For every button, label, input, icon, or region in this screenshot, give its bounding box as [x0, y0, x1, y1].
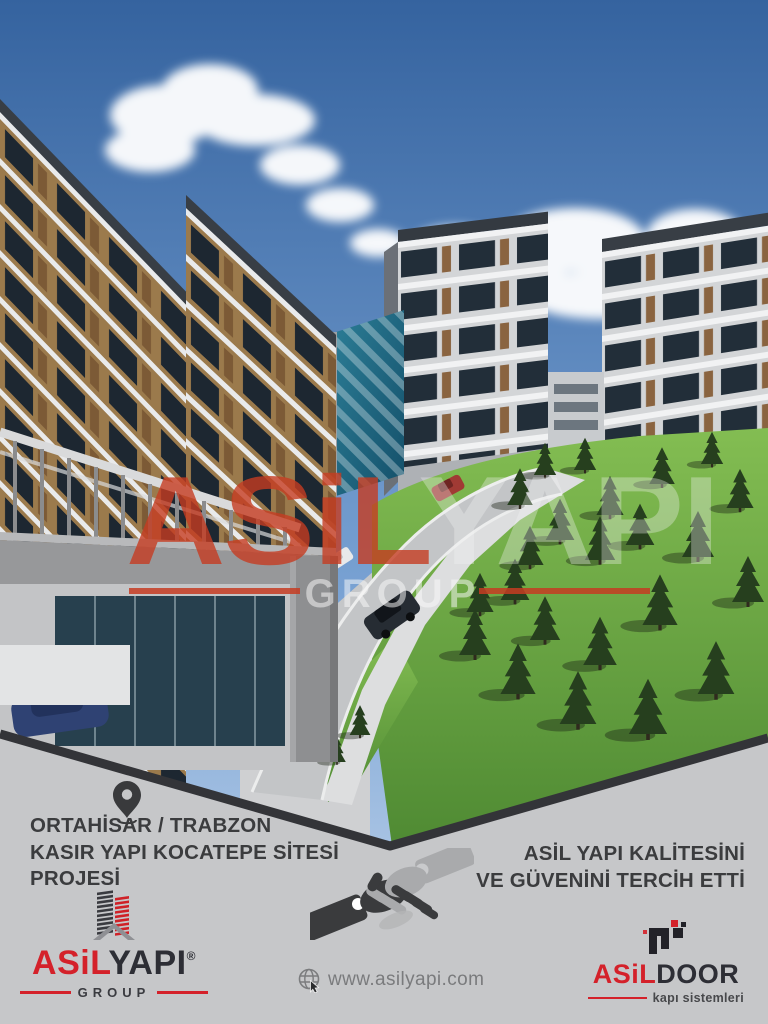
asilyapi-building-icon [87, 888, 141, 944]
testimonial-line2: VE GÜVENİNİ TERCİH ETTİ [476, 868, 745, 895]
project-info-block: ORTAHİSAR / TRABZON KASIR YAPI KOCATEPE … [30, 813, 339, 893]
asildoor-door-icon [643, 920, 689, 958]
registered-mark: ® [187, 949, 196, 963]
asilyapi-word-asil: ASiL [32, 944, 108, 982]
handshake-icon [310, 848, 474, 940]
render-scene: ASiLYAPI GROUP [0, 0, 768, 860]
location-text: ORTAHİSAR / TRABZON [30, 813, 339, 840]
asilyapi-group-label: GROUP [78, 985, 151, 1000]
asilyapi-word-yapi: YAPI [108, 944, 186, 982]
asildoor-tagline-row: kapı sistemleri [588, 991, 744, 1005]
project-render-photo: ASiLYAPI GROUP [0, 0, 768, 860]
watermark-yapi: YAPI [418, 450, 718, 591]
website-row: www.asilyapi.com [297, 967, 484, 993]
asilyapi-group-row: GROUP [20, 985, 208, 1000]
watermark-group: GROUP [305, 572, 482, 616]
asildoor-tagline: kapı sistemleri [653, 991, 744, 1005]
globe-cursor-icon [297, 967, 323, 993]
asildoor-word-door: DOOR [656, 959, 739, 989]
group-line-right [157, 991, 208, 994]
testimonial-block: ASİL YAPI KALİTESİNİ VE GÜVENİNİ TERCİH … [476, 841, 745, 894]
testimonial-line1: ASİL YAPI KALİTESİNİ [476, 841, 745, 868]
building-right [602, 213, 768, 464]
watermark-line-left [129, 588, 300, 594]
watermark-line-right [479, 588, 650, 594]
group-line-left [20, 991, 71, 994]
asilyapi-group-logo: ASiLYAPI® GROUP [20, 888, 208, 1000]
watermark-asil: ASiL [126, 450, 430, 591]
watermark: ASiLYAPI GROUP [126, 450, 718, 616]
watermark-brand: ASiLYAPI [126, 450, 718, 591]
project-name-line1: KASIR YAPI KOCATEPE SİTESİ [30, 840, 339, 867]
asildoor-logo: ASiLDOOR kapı sistemleri [588, 920, 744, 1005]
asildoor-word-asil: ASiL [593, 959, 657, 989]
promo-poster: ASiLYAPI GROUP ORTAHİSAR / TRABZON KASIR… [0, 0, 768, 1024]
website-url: www.asilyapi.com [328, 969, 484, 991]
tagline-line [588, 997, 647, 999]
asilyapi-wordmark: ASiLYAPI® [32, 946, 196, 980]
asildoor-wordmark: ASiLDOOR [593, 961, 740, 988]
